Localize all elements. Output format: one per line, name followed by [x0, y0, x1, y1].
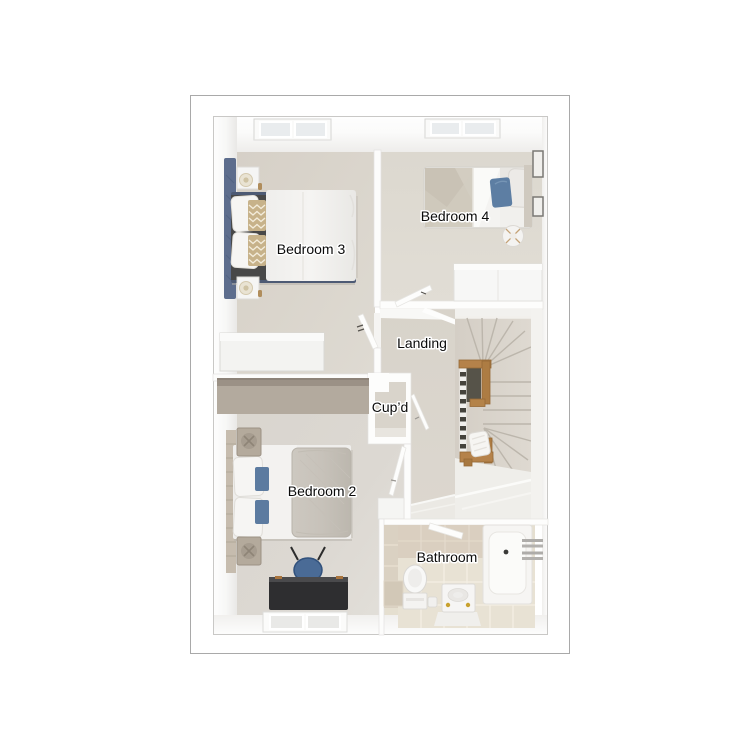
svg-text:Landing: Landing	[397, 335, 447, 351]
svg-text:Bathroom: Bathroom	[417, 549, 478, 565]
svg-text:Bedroom 2: Bedroom 2	[288, 483, 357, 499]
svg-text:Bedroom 4: Bedroom 4	[421, 208, 490, 224]
svg-text:Cup’d: Cup’d	[372, 399, 409, 415]
svg-text:Bedroom 3: Bedroom 3	[277, 241, 346, 257]
